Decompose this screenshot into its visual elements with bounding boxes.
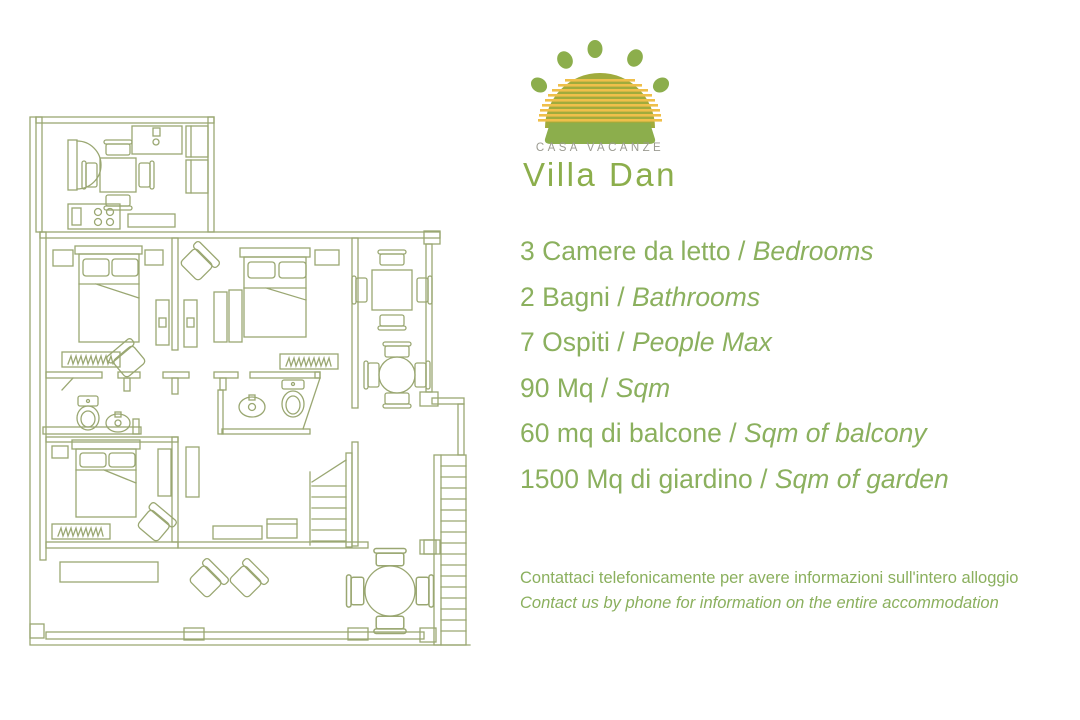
feature-garden-area: 1500 Mq di giardino / Sqm of garden (520, 457, 1040, 503)
feature-text-english: Sqm (616, 373, 671, 403)
contact-text-english: Contact us by phone for information on t… (520, 591, 1050, 616)
living-room (213, 453, 352, 547)
feature-text-english: Bedrooms (753, 236, 874, 266)
brand-tagline: CASA VACANZE (490, 142, 710, 154)
bedroom-3 (52, 440, 199, 544)
villa-dan-flyer: { "brand": { "tagline": "CASA VACANZE", … (0, 0, 1080, 720)
bedroom-2 (177, 240, 339, 369)
plan-outer-boundary (30, 117, 470, 645)
feature-text-english: Sqm of garden (775, 464, 949, 494)
feature-bedrooms: 3 Camere da letto / Bedrooms (520, 229, 1040, 275)
sun-stripes (538, 79, 662, 122)
feature-separator: / (610, 282, 632, 312)
feature-text-italian: 7 Ospiti (520, 327, 610, 357)
feature-separator: / (731, 236, 753, 266)
feature-separator: / (722, 418, 744, 448)
floor-plan-drawing (0, 0, 500, 720)
external-staircase (420, 455, 466, 645)
feature-text-italian: 1500 Mq di giardino (520, 464, 753, 494)
bathroom-2 (239, 380, 304, 417)
feature-bathrooms: 2 Bagni / Bathrooms (520, 275, 1040, 321)
kitchen (68, 126, 208, 229)
contact-text-italian: Contattaci telefonicamente per avere inf… (520, 566, 1050, 591)
feature-text-italian: 2 Bagni (520, 282, 610, 312)
bottom-balcony (60, 549, 434, 634)
contact-block: Contattaci telefonicamente per avere inf… (520, 566, 1050, 616)
feature-text-italian: 60 mq di balcone (520, 418, 722, 448)
info-panel: CASA VACANZE Villa Dan 3 Camere da letto… (490, 0, 1050, 720)
feature-text-english: Sqm of balcony (744, 418, 927, 448)
feature-balcony-area: 60 mq di balcone / Sqm of balcony (520, 411, 1040, 457)
feature-list: 3 Camere da letto / Bedrooms 2 Bagni / B… (520, 229, 1040, 502)
villa-dan-logo (528, 28, 674, 146)
feature-area: 90 Mq / Sqm (520, 366, 1040, 412)
feature-guests: 7 Ospiti / People Max (520, 320, 1040, 366)
feature-text-italian: 3 Camere da letto (520, 236, 731, 266)
sun-base (545, 123, 655, 144)
side-balcony (352, 250, 432, 408)
feature-text-english: People Max (632, 327, 772, 357)
feature-text-italian: 90 Mq (520, 373, 594, 403)
floor-plan-panel (0, 0, 500, 720)
feature-separator: / (753, 464, 775, 494)
feature-separator: / (610, 327, 632, 357)
feature-separator: / (594, 373, 616, 403)
sun-logo-icon (528, 28, 674, 146)
bedroom-1 (53, 246, 197, 380)
feature-text-english: Bathrooms (632, 282, 760, 312)
brand-name: Villa Dan (490, 156, 710, 194)
